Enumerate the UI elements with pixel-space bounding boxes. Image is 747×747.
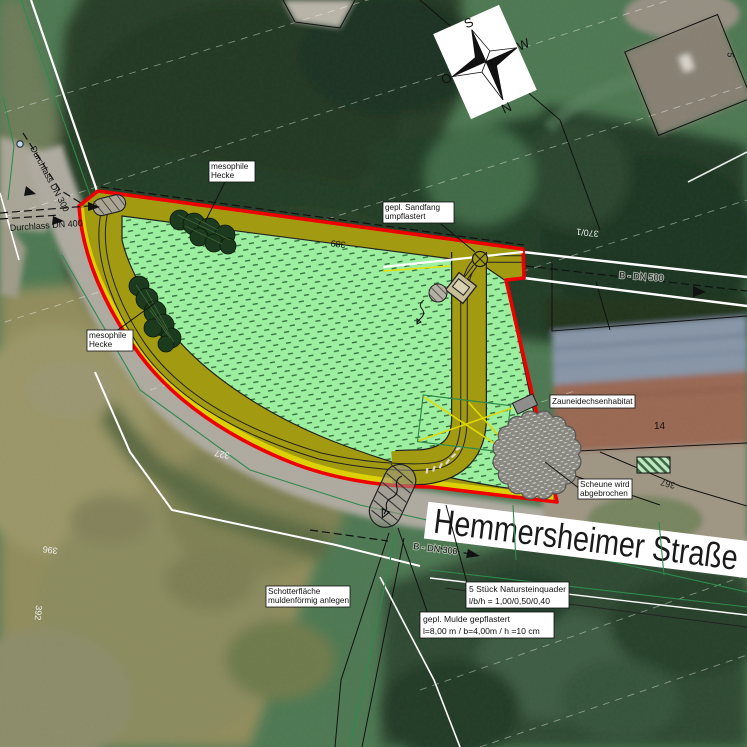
svg-text:396: 396 xyxy=(42,544,58,556)
svg-text:mesophile: mesophile xyxy=(89,331,127,340)
svg-text:392: 392 xyxy=(33,605,44,621)
svg-text:umpflastert: umpflastert xyxy=(385,212,426,221)
svg-text:mesophile: mesophile xyxy=(211,162,249,171)
svg-text:l/b/h = 1,00/0,50/0,40: l/b/h = 1,00/0,50/0,40 xyxy=(469,596,550,606)
svg-text:5 Stück Natursteinquader: 5 Stück Natursteinquader xyxy=(469,584,566,594)
svg-text:l=8,00 m / b=4,00m / h =10 cm: l=8,00 m / b=4,00m / h =10 cm xyxy=(423,626,540,636)
svg-text:Hecke: Hecke xyxy=(211,171,235,180)
svg-text:389: 389 xyxy=(330,238,346,250)
svg-text:Hecke: Hecke xyxy=(89,340,113,349)
svg-text:14: 14 xyxy=(654,421,666,432)
svg-text:Scheune wird: Scheune wird xyxy=(580,480,630,489)
svg-text:Schotterfläche: Schotterfläche xyxy=(268,587,321,596)
svg-text:abgebrochen: abgebrochen xyxy=(580,489,628,498)
svg-text:Zauneidechsenhabitat: Zauneidechsenhabitat xyxy=(552,397,633,406)
svg-text:muldenförmig anlegen: muldenförmig anlegen xyxy=(268,596,349,605)
svg-text:gepl. Mulde gepflastert: gepl. Mulde gepflastert xyxy=(423,614,511,624)
svg-text:gepl. Sandfang: gepl. Sandfang xyxy=(385,203,441,212)
